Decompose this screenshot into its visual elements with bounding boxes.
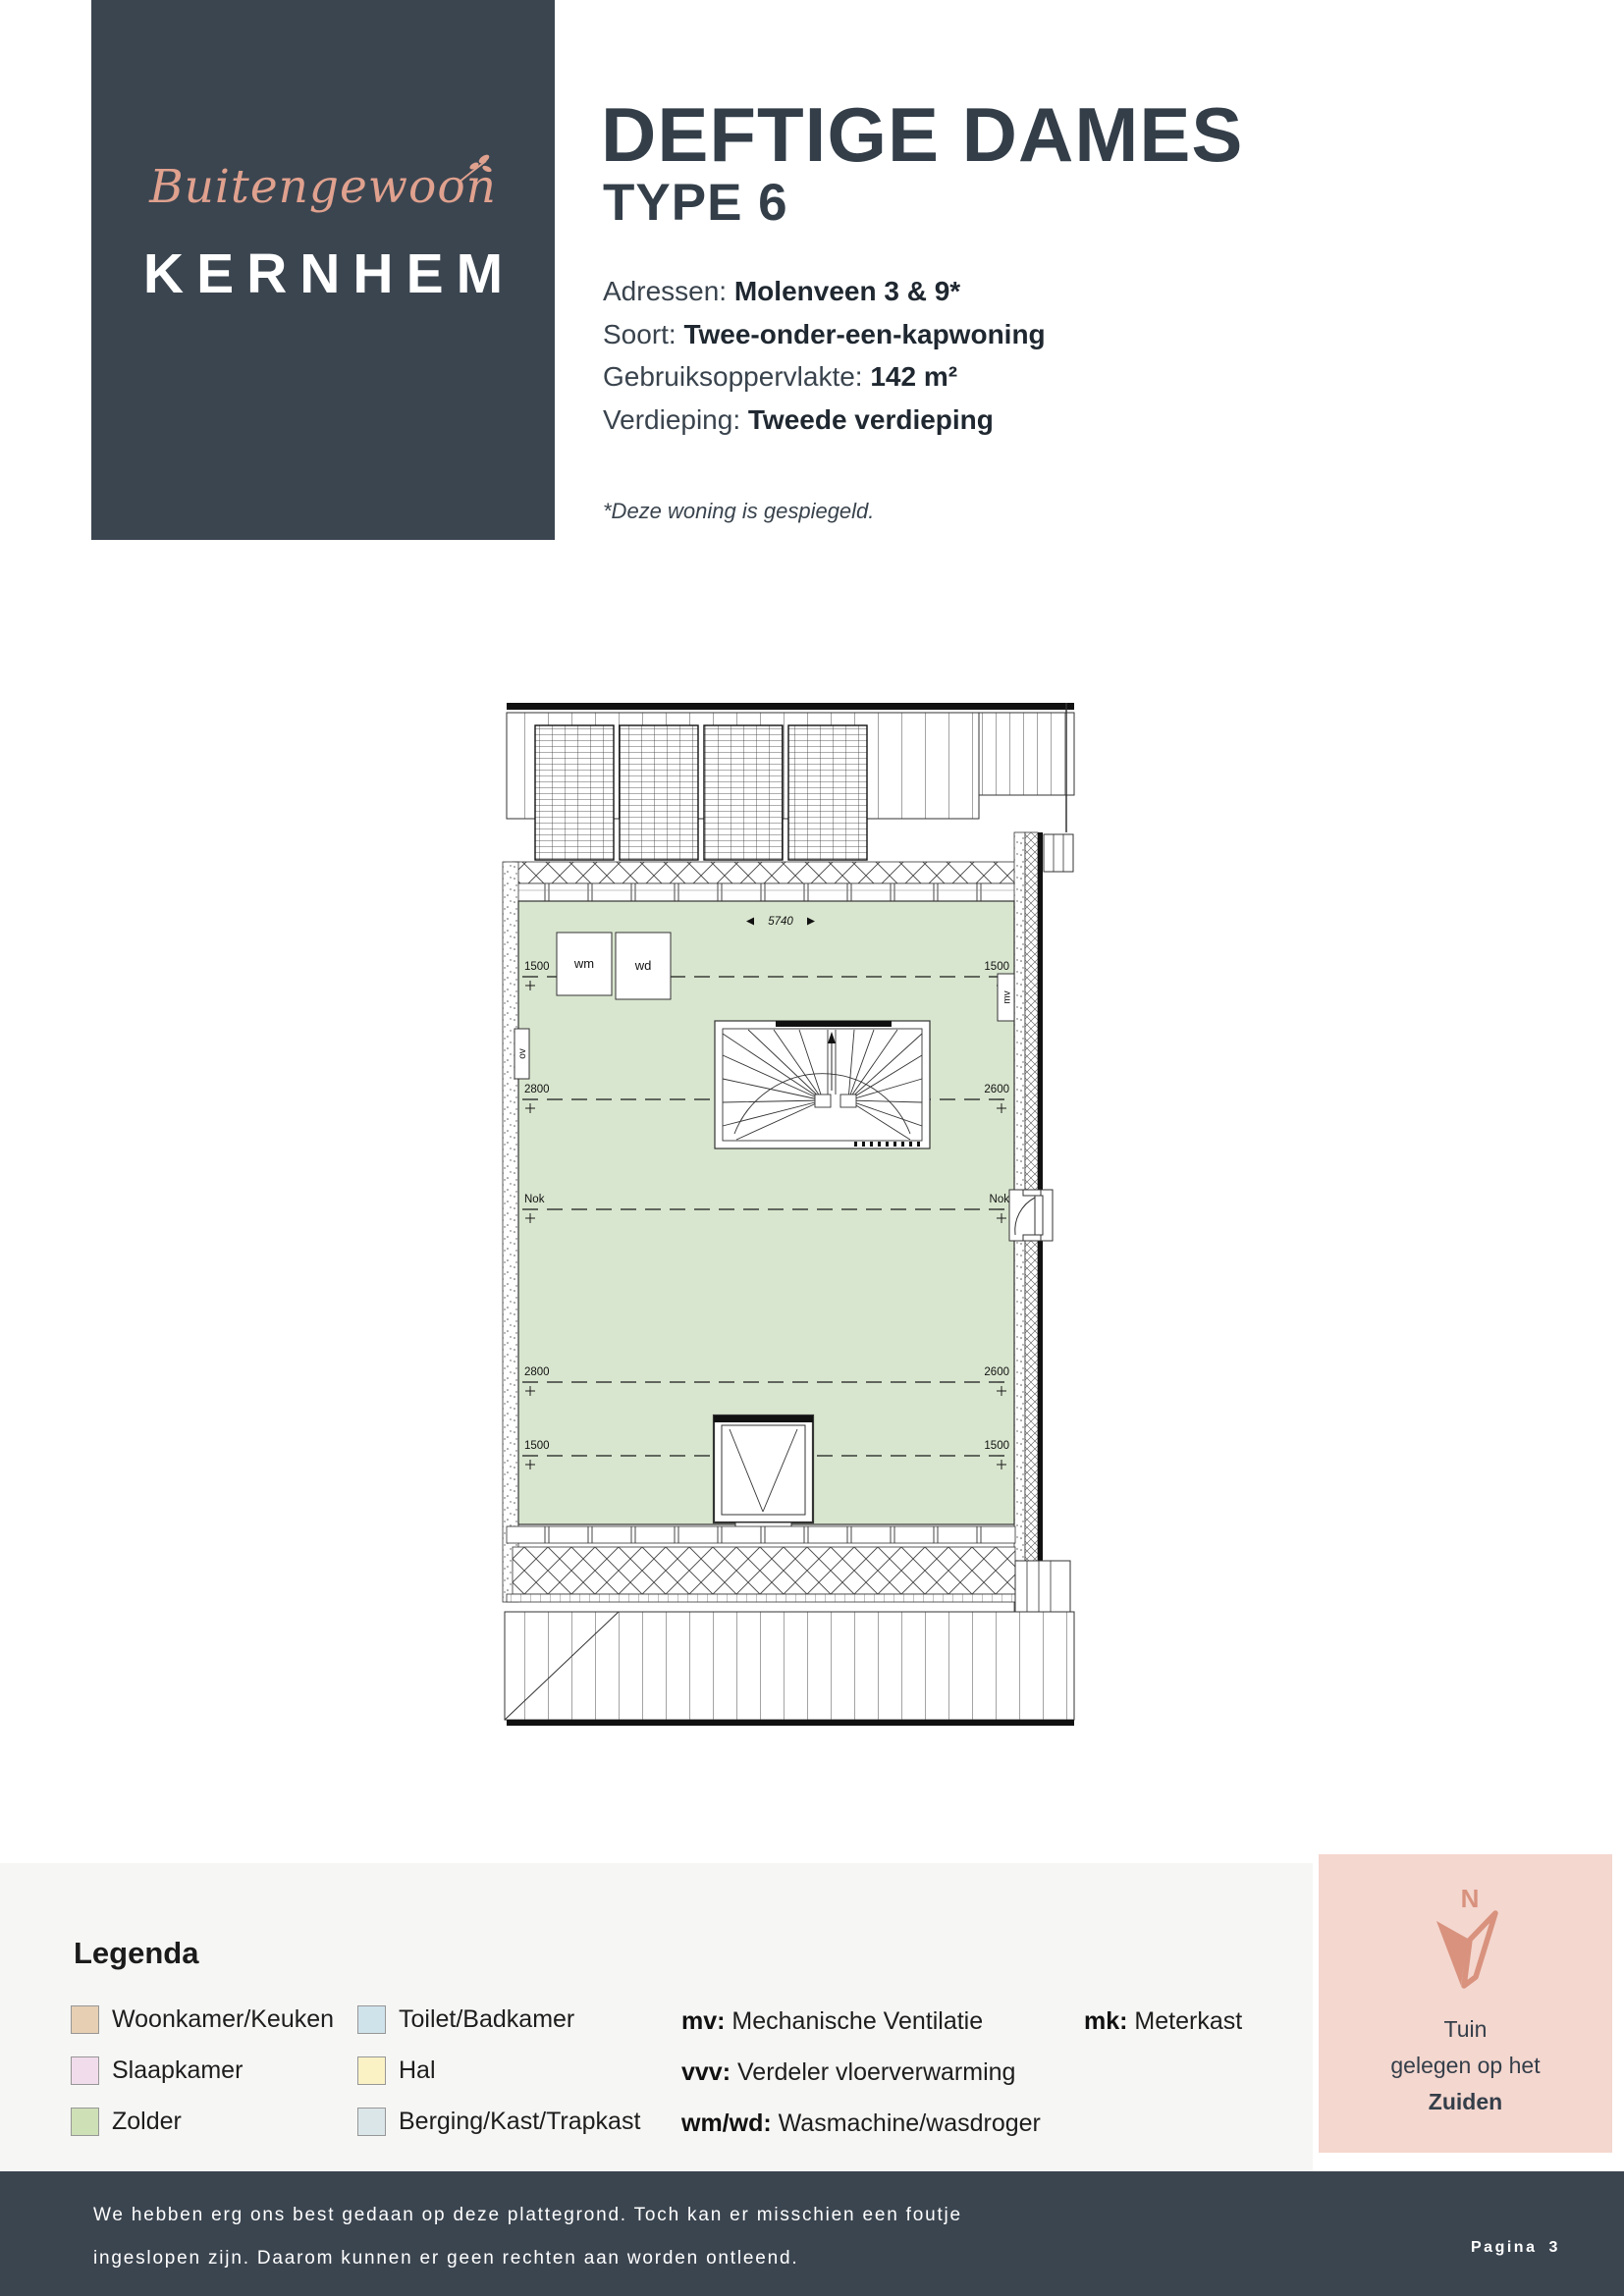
brochure-page: Buitengewoon KERNHEM DEFTIGE DAMES TYPE …: [0, 0, 1624, 2296]
abbr-key: mk:: [1084, 2007, 1127, 2035]
info-row-verdieping: Verdieping: Tweede verdieping: [603, 404, 1046, 448]
color-swatch: [71, 2005, 99, 2034]
info-label: Adressen:: [603, 276, 727, 306]
dim-left-1500-top: 1500: [524, 961, 550, 973]
footer-bar: We hebben erg ons best gedaan op deze pl…: [0, 2171, 1624, 2296]
legend-item-hal: Hal: [357, 2056, 436, 2085]
legend-label: Hal: [399, 2056, 436, 2085]
ov-label: ov: [517, 1048, 528, 1059]
north-compass-icon: N: [1417, 1884, 1515, 2002]
dim-left-2800-top: 2800: [524, 1084, 550, 1095]
abbr-mk: mk: Meterkast: [1084, 2007, 1242, 2036]
leaf-sprig-icon: [455, 153, 494, 187]
garden-line-1: Tuin: [1319, 2011, 1612, 2048]
garden-line-2: gelegen op het: [1319, 2048, 1612, 2084]
compass-arrow-right-blade: [1464, 1913, 1495, 1986]
legend-label: Zolder: [112, 2108, 182, 2136]
color-swatch: [71, 2108, 99, 2136]
legend-item-slaapkamer: Slaapkamer: [71, 2056, 243, 2085]
garden-line-3: Zuiden: [1319, 2084, 1612, 2120]
page-number-value: 3: [1548, 2239, 1559, 2256]
legend-section: Legenda Woonkamer/Keuken Slaapkamer Zold…: [0, 1863, 1313, 2171]
dormer-window: [714, 1415, 813, 1527]
legend-item-berging: Berging/Kast/Trapkast: [357, 2108, 640, 2136]
abbr-desc: Mechanische Ventilatie: [731, 2007, 983, 2035]
roof-edge-bands-bottom: [507, 1526, 1015, 1602]
wd-label: wd: [634, 958, 652, 973]
property-info: Adressen: Molenveen 3 & 9* Soort: Twee-o…: [603, 276, 1046, 447]
mv-fixture: mv: [998, 974, 1014, 1021]
info-label: Soort:: [603, 319, 677, 349]
abbr-vvv: vvv: Verdeler vloerverwarming: [681, 2058, 1015, 2087]
legend-label: Slaapkamer: [112, 2056, 243, 2085]
abbr-desc: Meterkast: [1134, 2007, 1242, 2035]
right-top-pier: [1044, 834, 1073, 872]
dim-left-1500-bottom: 1500: [524, 1440, 550, 1452]
color-swatch: [357, 2108, 386, 2136]
color-swatch: [357, 2005, 386, 2034]
abbr-desc: Wasmachine/wasdroger: [779, 2109, 1041, 2137]
abbr-mv: mv: Mechanische Ventilatie: [681, 2007, 983, 2036]
dim-left-2800-bottom: 2800: [524, 1366, 550, 1378]
width-dimension-label: 5740: [768, 916, 793, 928]
staircase: [715, 1021, 930, 1148]
logo-block: Buitengewoon KERNHEM: [91, 0, 555, 540]
dim-right-2600-bottom: 2600: [984, 1366, 1009, 1378]
page-label: Pagina: [1471, 2239, 1537, 2256]
color-swatch: [71, 2056, 99, 2085]
disclaimer-line-1: We hebben erg ons best gedaan op deze pl…: [93, 2205, 962, 2226]
abbr-key: vvv:: [681, 2058, 731, 2086]
wm-label: wm: [573, 956, 594, 971]
ov-fixture: ov: [514, 1029, 529, 1079]
legend-label: Toilet/Badkamer: [399, 2005, 574, 2034]
legend-item-zolder: Zolder: [71, 2108, 182, 2136]
mirrored-note: *Deze woning is gespiegeld.: [603, 499, 874, 524]
floor-plan-drawing: 5740 1500 1500 2800 2600 Nok Nok 2800 26…: [501, 687, 1100, 1737]
abbr-key: mv:: [681, 2007, 725, 2035]
right-wall-door: [1009, 1190, 1053, 1241]
left-wall: [503, 862, 518, 1602]
garden-orientation-text: Tuin gelegen op het Zuiden: [1319, 2011, 1612, 2120]
page-subtitle: TYPE 6: [603, 173, 788, 233]
abbr-key: wm/wd:: [681, 2109, 772, 2137]
garden-orientation-box: N Tuin gelegen op het Zuiden: [1319, 1854, 1612, 2153]
legend-item-woonkamer: Woonkamer/Keuken: [71, 2005, 334, 2034]
dim-right-2600-top: 2600: [984, 1084, 1009, 1095]
legend-label: Berging/Kast/Trapkast: [399, 2108, 640, 2136]
legend-title: Legenda: [74, 1936, 198, 1971]
logo-brand-name: KERNHEM: [91, 241, 555, 306]
info-value: Twee-onder-een-kapwoning: [683, 319, 1045, 349]
info-row-soort: Soort: Twee-onder-een-kapwoning: [603, 319, 1046, 362]
info-value: Molenveen 3 & 9*: [734, 276, 960, 306]
page-title: DEFTIGE DAMES: [601, 90, 1243, 180]
color-swatch: [357, 2056, 386, 2085]
dim-right-1500-bottom: 1500: [984, 1440, 1009, 1452]
compass-n-letter: N: [1460, 1884, 1479, 1913]
info-value: 142 m²: [870, 361, 957, 392]
info-label: Gebruiksoppervlakte:: [603, 361, 863, 392]
abbr-wmwd: wm/wd: Wasmachine/wasdroger: [681, 2109, 1041, 2138]
page-number: Pagina3: [1471, 2239, 1560, 2257]
dim-left-nok: Nok: [524, 1194, 545, 1205]
mv-label: mv: [1002, 990, 1013, 1003]
info-label: Verdieping:: [603, 404, 740, 435]
info-value: Tweede verdieping: [748, 404, 994, 435]
roof-edge-bands-top: [507, 862, 1015, 901]
dim-right-1500-top: 1500: [984, 961, 1009, 973]
legend-label: Woonkamer/Keuken: [112, 2005, 334, 2034]
disclaimer-line-2: ingeslopen zijn. Daarom kunnen er geen r…: [93, 2248, 798, 2269]
info-row-adressen: Adressen: Molenveen 3 & 9*: [603, 276, 1046, 319]
abbr-desc: Verdeler vloerverwarming: [737, 2058, 1015, 2086]
legend-item-toilet: Toilet/Badkamer: [357, 2005, 574, 2034]
roof-bottom-structure: [505, 1612, 1074, 1726]
stair-tread-ticks: [854, 1142, 920, 1147]
info-row-oppervlakte: Gebruiksoppervlakte: 142 m²: [603, 361, 1046, 404]
dim-right-nok: Nok: [990, 1194, 1010, 1205]
